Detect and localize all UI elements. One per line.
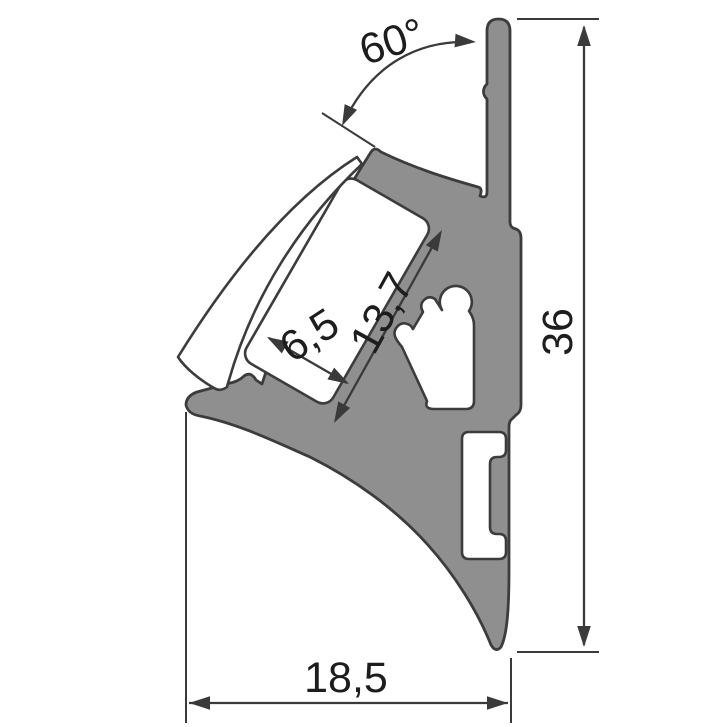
depth-arrow-left — [189, 696, 210, 710]
depth-value: 18,5 — [304, 654, 388, 702]
dimension-angle-60: 60° — [322, 9, 476, 147]
height-arrow-bottom — [577, 626, 591, 647]
dimension-height-36: 36 — [517, 19, 599, 652]
height-value: 36 — [534, 308, 582, 356]
drawing-canvas: 60° 36 18,5 13,7 6,5 — [0, 0, 727, 727]
height-arrow-top — [577, 25, 591, 46]
angle-arrow-start — [336, 104, 357, 129]
angle-arrow-end — [455, 34, 477, 49]
angle-value: 60° — [354, 9, 431, 75]
depth-arrow-right — [487, 696, 508, 710]
profile-technical-drawing: 60° 36 18,5 13,7 6,5 — [0, 0, 727, 727]
